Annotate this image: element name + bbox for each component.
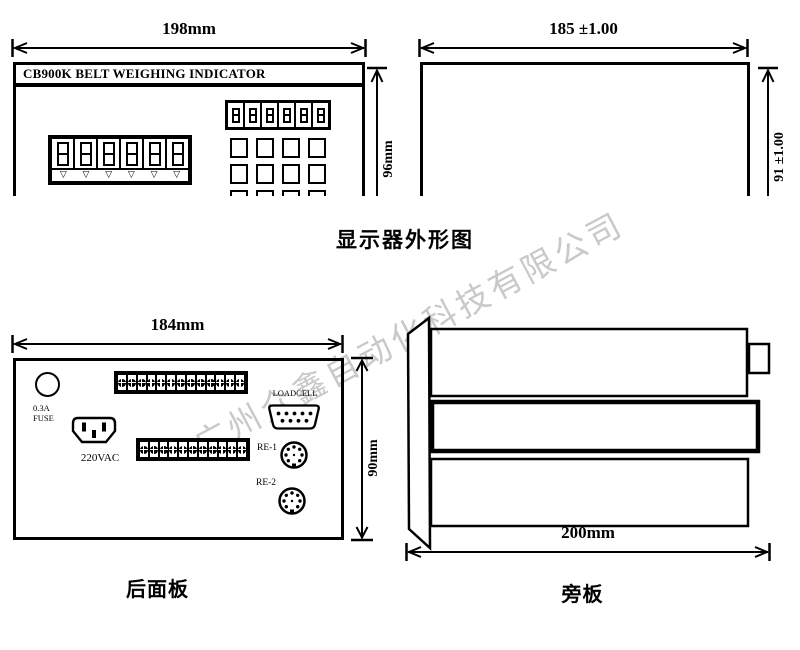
terminal [179,442,187,457]
small-display-digit [245,103,260,127]
keypad-key [230,164,248,184]
fuse-icon [35,372,60,397]
display-indicators: ▽▽▽▽▽▽ [52,168,188,181]
screw-icon [187,379,195,387]
screw-icon [169,446,177,454]
screw-icon [207,379,215,387]
panel-title: CB900K BELT WEIGHING INDICATOR [16,65,362,87]
keypad [230,138,326,196]
keypad-key [308,190,326,196]
outline-height-dimension-label: 91 ±1.00 [772,132,788,182]
digit-8-glyph [249,108,257,123]
fuse-rating: 0.3A [33,403,54,413]
terminal [226,375,234,390]
rear-width-dimension: 184mm [11,316,344,353]
terminal [140,442,148,457]
keypad-key [256,164,274,184]
display-digit [98,139,121,168]
screw-icon [197,379,205,387]
screw-icon [177,379,185,387]
screw-icon [160,446,168,454]
digit-8-glyph [149,142,161,166]
terminal [138,375,146,390]
screw-icon [189,446,197,454]
keypad-key [230,138,248,158]
terminal [236,375,244,390]
terminal [160,442,168,457]
keypad-key [282,190,300,196]
indicator-triangle-icon: ▽ [165,170,188,181]
power-inlet-icon [71,416,117,444]
terminal [189,442,197,457]
keypad-key [230,190,248,196]
screw-icon [138,379,146,387]
dimension-arrow [11,335,344,353]
screw-icon [199,446,207,454]
re1-label: RE-1 [257,443,277,453]
front-bezel-flange [408,318,430,548]
screw-icon [150,446,158,454]
keypad-key [282,138,300,158]
keypad-key [256,190,274,196]
terminal [199,442,207,457]
digit-8-glyph [126,142,138,166]
indicator-triangle-icon: ▽ [143,170,166,181]
small-display-digit [313,103,328,127]
top-slab [431,329,747,396]
keypad-key [256,138,274,158]
terminal [228,442,236,457]
screw-icon [179,446,187,454]
rear-tab [749,344,769,373]
screw-icon [147,379,155,387]
front-height-dimension-label: 96mm [381,140,397,177]
loadcell-label: LOADCELL [269,388,321,398]
display-digit [167,139,188,168]
terminal [209,442,217,457]
keypad-key [308,164,326,184]
fuse-label: 0.3A FUSE [33,403,54,423]
dimension-label: 200mm [561,524,615,542]
display-digit [75,139,98,168]
display-digit [52,139,75,168]
terminal [177,375,185,390]
terminal [128,375,136,390]
indicator-triangle-icon: ▽ [75,170,98,181]
screw-icon [167,379,175,387]
digit-8-glyph [283,108,291,123]
screw-icon [226,379,234,387]
digit-8-glyph [57,142,69,166]
terminal [118,375,126,390]
side-width-dimension: 200mm [405,524,771,561]
screw-icon [140,446,148,454]
dimension-label: 184mm [151,316,205,334]
db9-connector-icon [266,403,322,431]
front-width-dimension: 198mm [11,20,367,57]
terminal [238,442,246,457]
din-connector-icon [279,440,309,470]
keypad-key [282,164,300,184]
rear-panel-view: 0.3A FUSE 220VAC LOADCELL RE-1 [13,358,344,540]
screw-icon [218,446,226,454]
digit-8-glyph [232,108,240,123]
screw-icon [128,379,136,387]
terminal [157,375,165,390]
terminal [219,442,227,457]
screw-icon [209,446,217,454]
re2-label: RE-2 [256,478,276,488]
rear-panel-caption: 后面板 [105,573,210,602]
dimension-arrow [418,39,749,57]
power-label: 220VAC [76,452,124,464]
rear-height-dimension-label: 90mm [366,439,382,476]
outline-side-view [420,62,750,196]
terminal [148,375,156,390]
terminal [216,375,224,390]
small-display-digit [228,103,243,127]
side-board-view [400,310,780,555]
screw-icon [216,379,224,387]
indicator-triangle-icon: ▽ [97,170,120,181]
screw-icon [236,379,244,387]
digit-8-glyph [317,108,325,123]
terminal-strip-bottom [136,438,250,461]
small-display-digit [296,103,311,127]
front-panel-view: CB900K BELT WEIGHING INDICATOR ▽▽▽▽▽▽ [13,62,365,196]
bottom-slab [431,459,748,526]
dimension-arrow [11,39,367,57]
screw-icon [228,446,236,454]
dimension-label: 198mm [162,20,216,38]
side-board-caption: 旁板 [535,578,630,607]
technical-drawing-page: 广州众鑫自动化科技有限公司 198mm CB900K BELT WEIGHING… [0,0,800,650]
dimension-label: 185 ±1.00 [549,20,618,38]
digit-8-glyph [172,142,184,166]
digit-8-glyph [103,142,115,166]
display-outline-caption: 显示器外形图 [320,224,490,254]
screw-icon [238,446,246,454]
keypad-key [308,138,326,158]
indicator-triangle-icon: ▽ [52,170,75,181]
outline-width-dimension: 185 ±1.00 [418,20,749,57]
main-display: ▽▽▽▽▽▽ [48,135,192,185]
terminal [150,442,158,457]
screw-icon [157,379,165,387]
display-digits [52,139,188,168]
display-digit [144,139,167,168]
terminal-strip-top [114,371,248,394]
terminal [207,375,215,390]
din-connector-icon [277,486,307,516]
terminal [167,375,175,390]
digit-8-glyph [80,142,92,166]
display-digit [121,139,144,168]
small-display-digit [262,103,277,127]
digit-8-glyph [266,108,274,123]
middle-slab [432,402,758,451]
fuse-word: FUSE [33,413,54,423]
terminal [187,375,195,390]
secondary-display [225,100,331,130]
dimension-arrow [405,543,771,561]
indicator-triangle-icon: ▽ [120,170,143,181]
digit-8-glyph [300,108,308,123]
terminal [197,375,205,390]
small-display-digit [279,103,294,127]
screw-icon [118,379,126,387]
terminal [169,442,177,457]
